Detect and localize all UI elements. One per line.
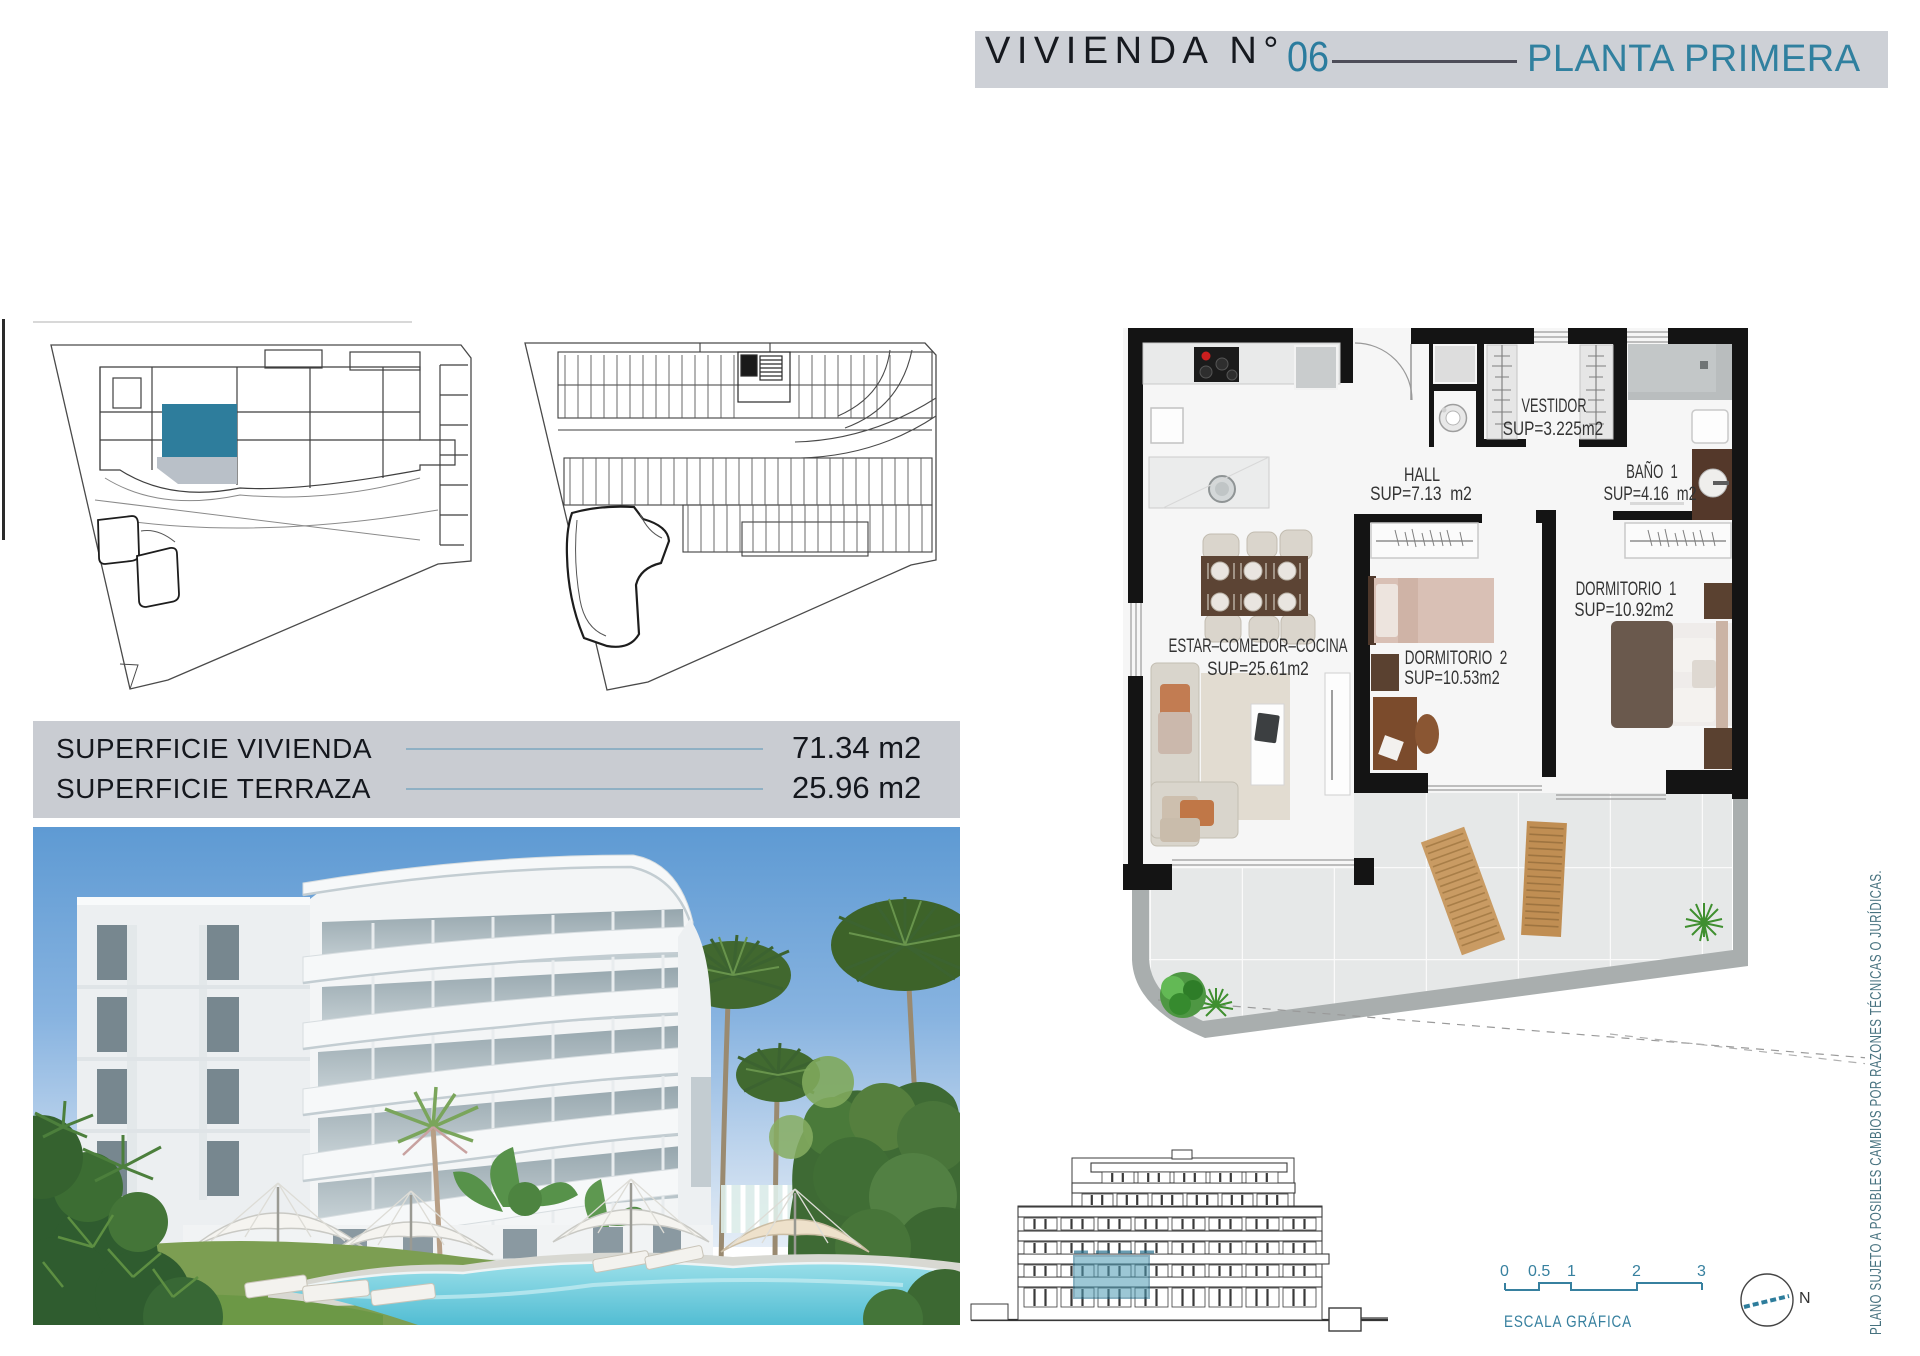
svg-text:SUP=3.225m2: SUP=3.225m2 — [1503, 417, 1603, 439]
svg-text:SUP=7.13 m2: SUP=7.13 m2 — [1370, 483, 1472, 505]
svg-text:SUP=4.16 m2: SUP=4.16 m2 — [1603, 483, 1696, 504]
svg-text:ESCALA GRÁFICA: ESCALA GRÁFICA — [1504, 1313, 1632, 1332]
svg-text:BAÑO 1: BAÑO 1 — [1626, 461, 1678, 483]
svg-text:DORMITORIO 1: DORMITORIO 1 — [1576, 579, 1677, 600]
svg-text:0.5: 0.5 — [1528, 1263, 1550, 1280]
svg-text:SUP=10.92m2: SUP=10.92m2 — [1574, 598, 1673, 620]
svg-text:3: 3 — [1697, 1263, 1706, 1280]
svg-text:VESTIDOR: VESTIDOR — [1521, 396, 1586, 417]
svg-text:DORMITORIO 2: DORMITORIO 2 — [1405, 648, 1507, 669]
svg-text:SUP=10.53m2: SUP=10.53m2 — [1404, 667, 1499, 688]
svg-text:PLANO SUJETO A POSIBLES CAMBIO: PLANO SUJETO A POSIBLES CAMBIOS POR RAZO… — [1868, 870, 1885, 1335]
svg-text:1: 1 — [1567, 1263, 1576, 1280]
svg-text:ESTAR–COMEDOR–COCINA: ESTAR–COMEDOR–COCINA — [1168, 636, 1347, 657]
svg-text:N: N — [1799, 1290, 1811, 1307]
svg-text:SUP=25.61m2: SUP=25.61m2 — [1207, 658, 1309, 680]
svg-text:0: 0 — [1500, 1263, 1509, 1280]
svg-text:2: 2 — [1632, 1263, 1641, 1280]
